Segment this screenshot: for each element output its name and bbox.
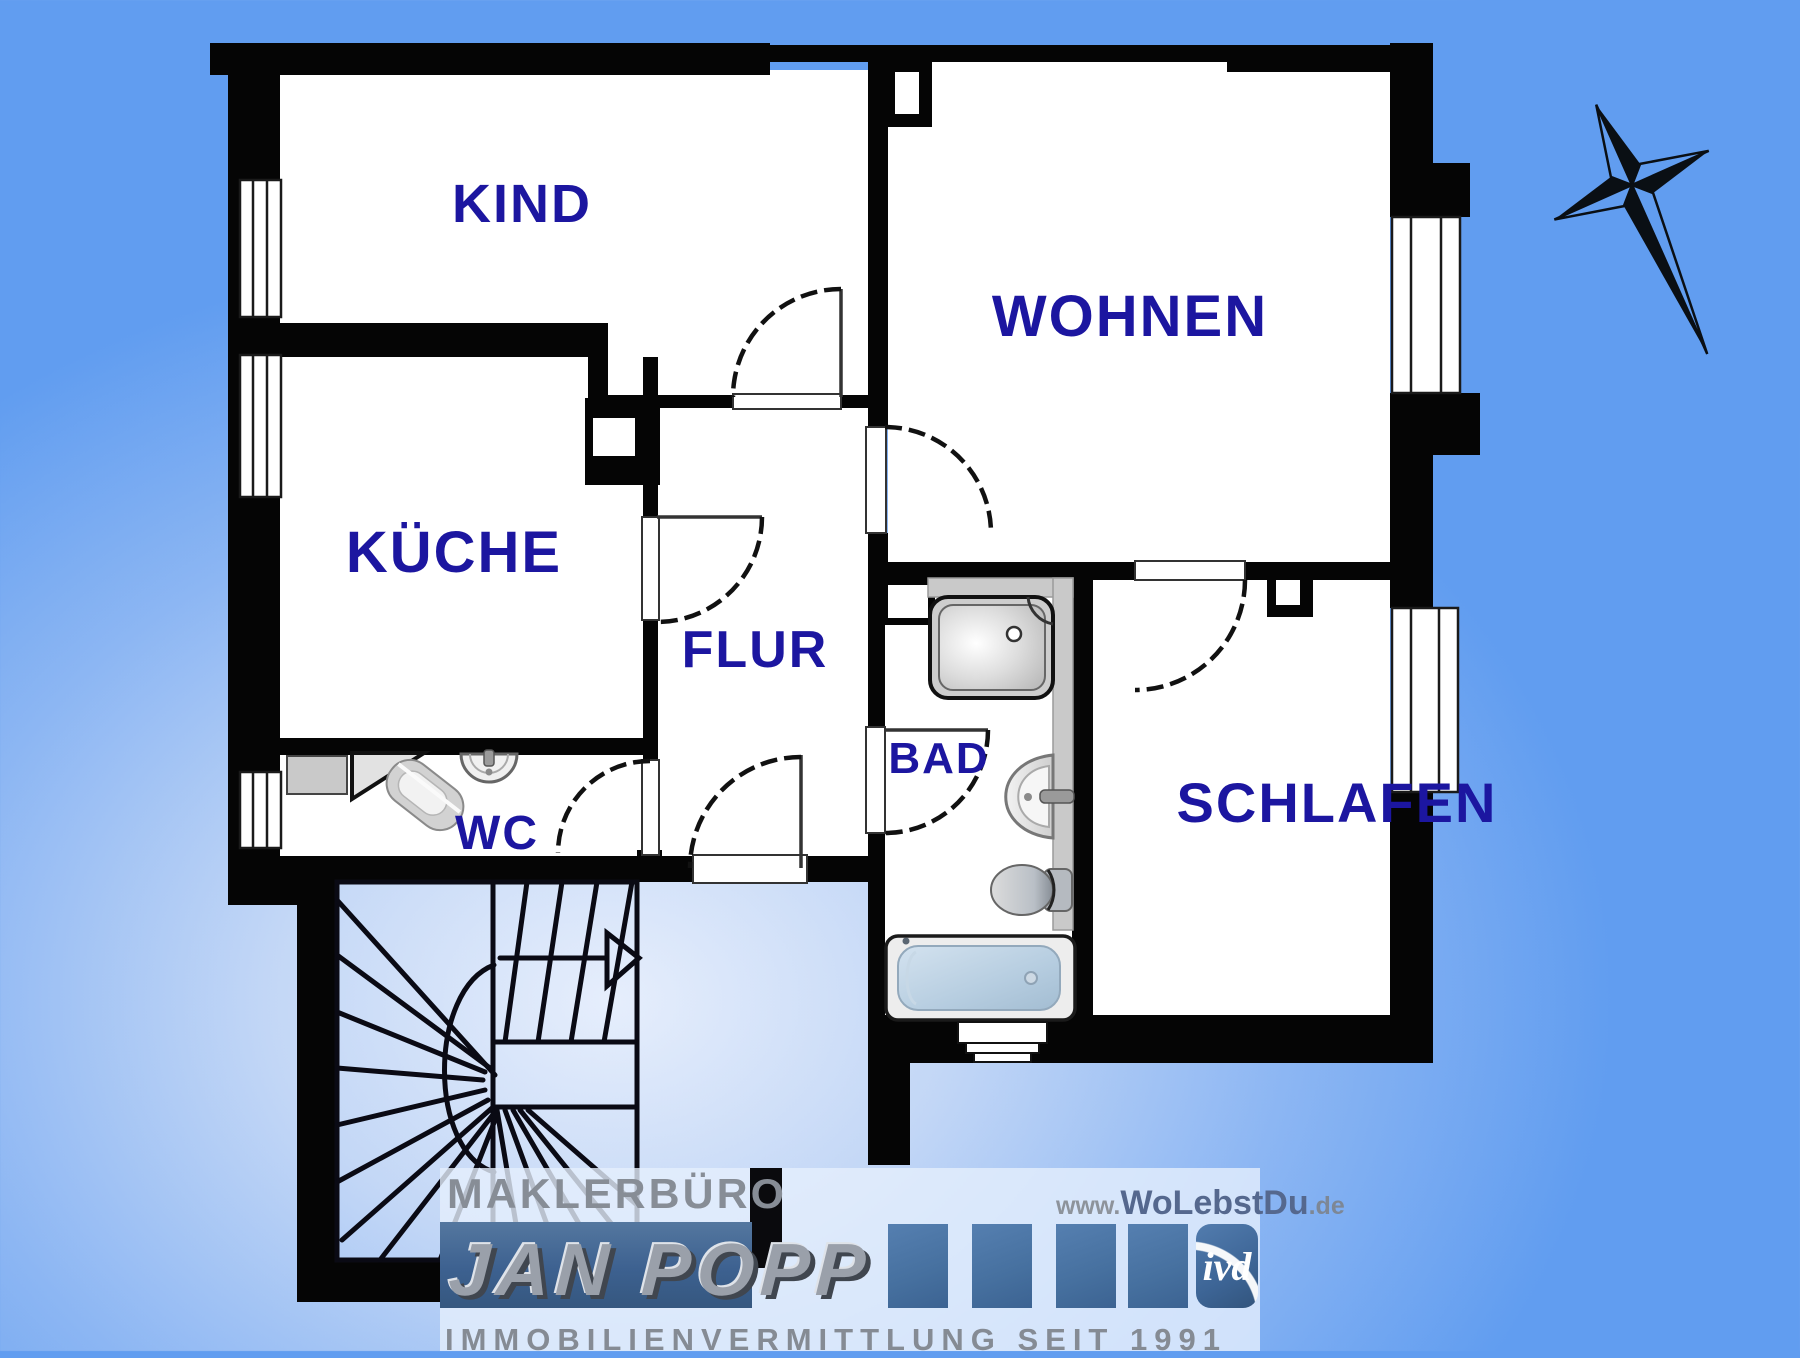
window-schlafen-right <box>1392 608 1458 792</box>
website-suffix: .de <box>1309 1192 1345 1220</box>
wall-bottom-right <box>868 1015 1433 1063</box>
wall-right-schlafen-upper <box>1390 560 1433 608</box>
wall-nub-window-top <box>1423 163 1470 217</box>
washer-icon <box>287 756 347 794</box>
wall-wohnen-left-lower <box>868 533 888 562</box>
chimney-flue-schlafen <box>1276 580 1300 605</box>
website-prefix: www. <box>1056 1192 1120 1220</box>
logo-square-3 <box>1056 1224 1116 1308</box>
shower-icon <box>930 597 1053 698</box>
room-label-bad: BAD <box>888 734 989 783</box>
wall-stair-left <box>297 882 337 1302</box>
window-kueche-left <box>240 355 281 497</box>
window-wohnen-right <box>1392 217 1460 393</box>
wall-kind-bottom <box>228 323 607 357</box>
wall-top-wohnen <box>770 45 1230 62</box>
bathtub-icon <box>886 936 1075 1020</box>
room-label-schlafen: SCHLAFEN <box>1177 771 1498 834</box>
room-label-wc: WC <box>455 807 539 860</box>
room-label-kueche: KÜCHE <box>346 520 562 585</box>
logo-square-1 <box>888 1224 948 1308</box>
logo-name-text: JAN POPP <box>447 1227 874 1312</box>
website-url: www.WoLebstDu.de <box>1056 1184 1345 1223</box>
room-label-wohnen: WOHNEN <box>992 284 1268 349</box>
wall-kueche-flur-lower <box>643 620 658 755</box>
wall-bad-left-lower <box>868 833 885 1023</box>
toilet-icon <box>991 865 1072 915</box>
logo-square-2 <box>972 1224 1032 1308</box>
chimney-flue-wohnen <box>895 72 919 114</box>
wall-nub-window-bottom <box>1423 393 1480 455</box>
website-name: WoLebstDu <box>1120 1184 1308 1222</box>
floor-plan-page: KIND WOHNEN KÜCHE FLUR BAD WC SCHLAFEN M… <box>0 0 1800 1351</box>
room-label-kind: KIND <box>452 174 592 234</box>
ivd-badge: ivd <box>1196 1224 1258 1308</box>
window-kind-left <box>240 180 281 317</box>
wall-bottom-flur-right <box>807 856 868 882</box>
wall-below-bad <box>868 1063 910 1165</box>
chimney-flue-bad <box>888 585 928 618</box>
logo-tagline-text: IMMOBILIENVERMITTLUNG SEIT 1991 <box>445 1322 1227 1358</box>
logo-office-text: MAKLERBÜRO <box>447 1170 1161 1218</box>
wall-kueche-flur-upper <box>643 357 658 517</box>
floor-plan-drawing: KIND WOHNEN KÜCHE FLUR BAD WC SCHLAFEN <box>0 0 1800 1351</box>
wall-top-left <box>210 43 770 75</box>
room-label-flur: FLUR <box>682 621 829 679</box>
wall-kueche-wc <box>228 738 658 755</box>
chimney-flue-flur <box>593 418 635 456</box>
compass-icon <box>1519 70 1784 388</box>
tile-band-top <box>928 578 1073 597</box>
wall-top-wohnen-right <box>1227 45 1390 72</box>
logo-square-4 <box>1128 1224 1188 1308</box>
window-wc-left <box>240 772 281 848</box>
